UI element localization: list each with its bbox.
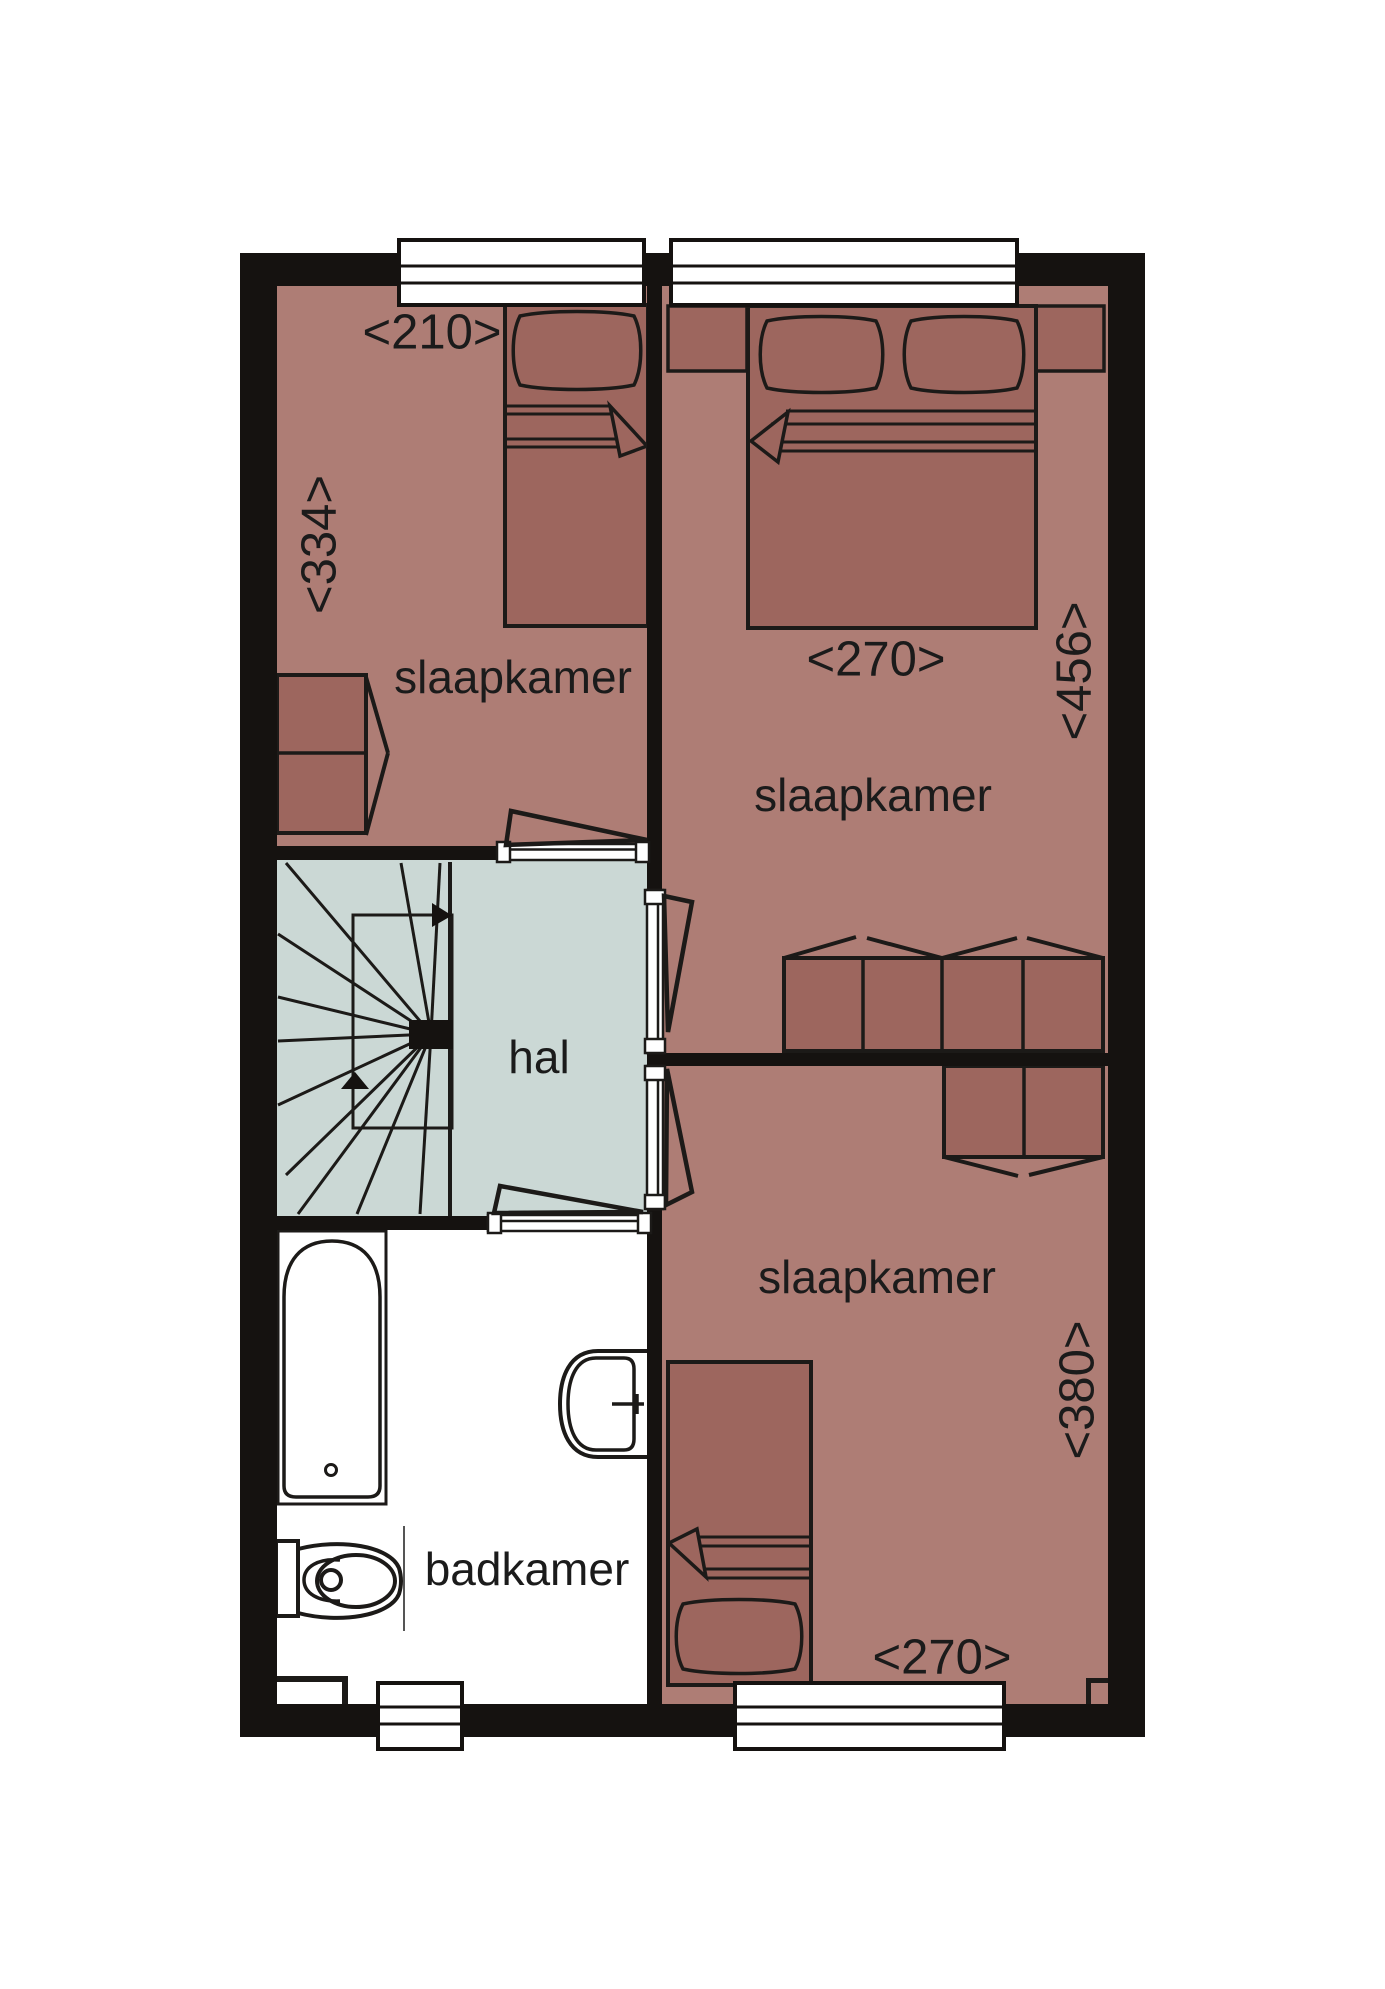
svg-text:<380>: <380> — [1051, 1321, 1105, 1460]
svg-text:badkamer: badkamer — [425, 1543, 630, 1595]
svg-text:<270>: <270> — [873, 1631, 1012, 1685]
svg-text:slaapkamer: slaapkamer — [754, 769, 992, 821]
svg-text:<334>: <334> — [293, 475, 347, 614]
svg-text:<270>: <270> — [807, 633, 946, 687]
svg-text:slaapkamer: slaapkamer — [758, 1251, 996, 1303]
svg-text:hal: hal — [508, 1031, 569, 1083]
svg-text:<456>: <456> — [1048, 602, 1102, 741]
svg-text:<210>: <210> — [363, 306, 502, 360]
svg-text:slaapkamer: slaapkamer — [394, 651, 632, 703]
